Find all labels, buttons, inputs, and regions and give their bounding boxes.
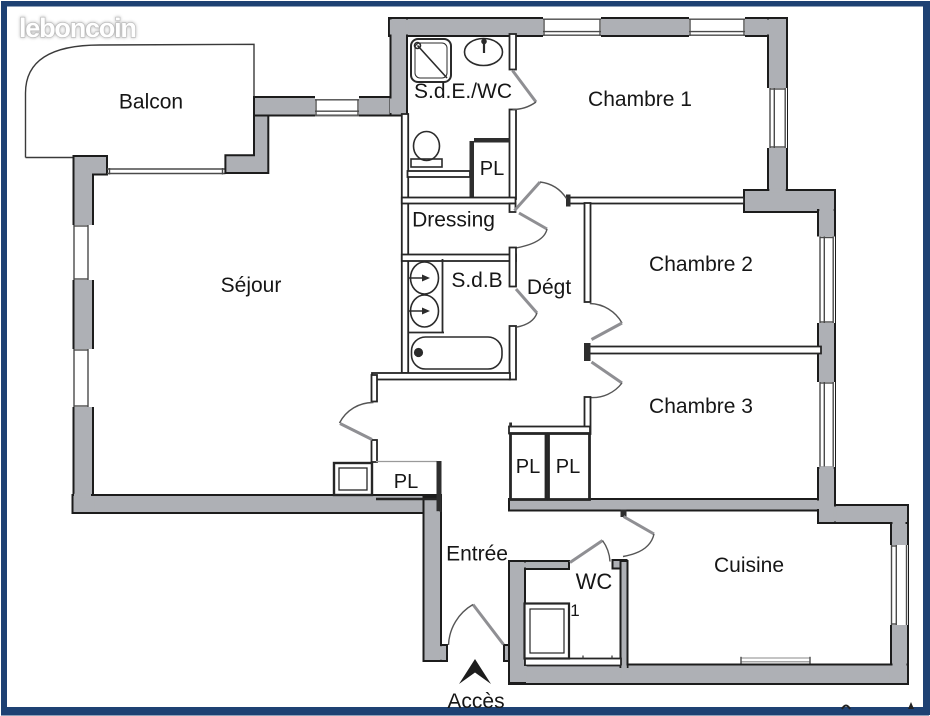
svg-text:Entrée: Entrée xyxy=(446,543,508,566)
svg-text:Accès: Accès xyxy=(447,690,504,713)
svg-text:Cuisine: Cuisine xyxy=(714,554,784,577)
svg-text:PL: PL xyxy=(516,456,540,478)
svg-text:S.d.B: S.d.B xyxy=(451,269,502,292)
svg-text:Dégt: Dégt xyxy=(527,276,572,299)
svg-text:WC: WC xyxy=(576,569,613,594)
svg-text:1: 1 xyxy=(570,601,579,620)
svg-text:Chambre 2: Chambre 2 xyxy=(649,253,753,276)
svg-text:PL: PL xyxy=(480,158,504,180)
svg-text:leboncoin: leboncoin xyxy=(19,13,136,43)
svg-text:PL: PL xyxy=(556,456,580,478)
svg-text:S.d.E./WC: S.d.E./WC xyxy=(414,80,512,103)
svg-text:Chambre 1: Chambre 1 xyxy=(588,88,692,111)
svg-text:Balcon: Balcon xyxy=(119,91,183,114)
svg-text:Séjour: Séjour xyxy=(221,274,282,297)
svg-text:Chambre 3: Chambre 3 xyxy=(649,395,753,418)
svg-text:Dressing: Dressing xyxy=(412,209,495,232)
svg-text:PL: PL xyxy=(394,471,418,493)
